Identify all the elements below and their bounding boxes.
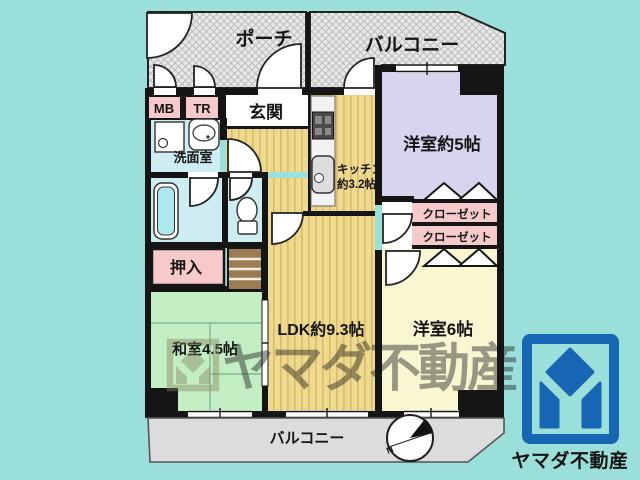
corridor-floor [268,178,310,215]
balcony-bottom-label: バルコニー [270,430,345,447]
brand-logo-text: ヤマダ不動産 [511,449,628,472]
wall-notch-west5 [460,72,498,95]
washbasin-icon [189,119,219,150]
compass-north-icon: N [385,415,433,461]
porch-label: ポーチ [235,27,292,50]
kitchen-label-line1: キッチン [337,163,383,176]
tr-label: TR [193,101,211,116]
wall-notch-washitsu [145,388,178,412]
oshiire-label: 押入 [170,258,202,277]
ldk-label: LDK約9.3帖 [277,320,364,339]
entrance-label: 玄関 [249,102,283,122]
kitchen-sink-icon [312,156,334,193]
kitchen-label-line2: 約3.2帖 [337,177,376,191]
toilet-icon [237,198,257,235]
kitchen-counter [311,96,335,206]
watermark: ヤマダ不動産 [170,340,517,398]
washroom-label: 洗面室 [173,150,212,165]
closet2-label: クローゼット [423,230,492,244]
floorplan-image: N ポーチ バルコニー MB TR 玄関 洗面室 キッチン 約3.2帖 洋室約5… [0,0,640,480]
stove-icon [313,112,334,139]
bathtub-icon [154,183,178,239]
floorplan-svg: N ポーチ バルコニー MB TR 玄関 洗面室 キッチン 約3.2帖 洋室約5… [0,0,640,480]
closet1-label: クローゼット [423,207,492,221]
steps-icon [228,248,262,290]
washing-machine-icon [155,122,184,152]
western6-label: 洋室6帖 [413,319,473,339]
balcony-top-label: バルコニー [365,34,460,56]
watermark-text: ヤマダ不動産 [222,340,517,398]
mb-label: MB [154,101,174,116]
western5-label: 洋室約5帖 [403,134,480,154]
